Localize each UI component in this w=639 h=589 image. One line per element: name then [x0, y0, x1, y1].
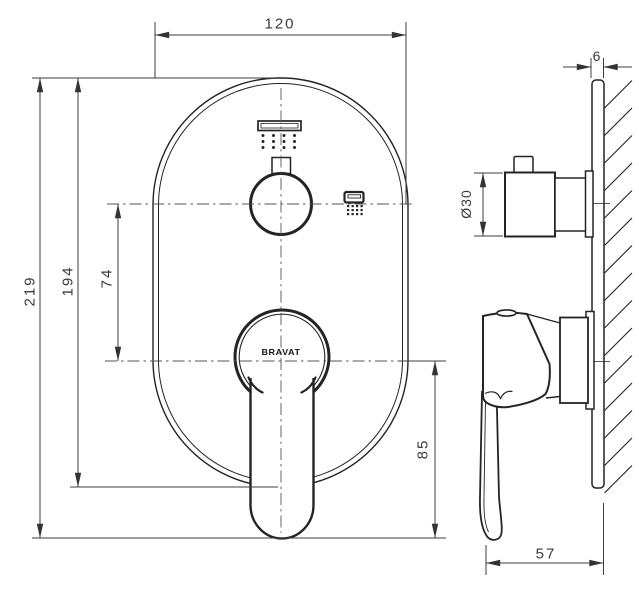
- side-view: [480, 80, 632, 540]
- dim-plate-thickness: 6: [593, 48, 602, 64]
- wall-hatching: [605, 81, 633, 494]
- dim-total-height: 219: [22, 275, 39, 306]
- brand-logo: BRAVAT: [261, 347, 300, 357]
- front-view: [105, 78, 412, 538]
- dim-knob-diameter: Ø30: [458, 189, 474, 218]
- rain-shower-icon: [258, 121, 301, 149]
- handle-side-base: [560, 318, 588, 404]
- knob-side-button: [514, 157, 533, 174]
- dim-total-height-lines: [32, 78, 446, 538]
- dim-handle-projection-lines: [486, 503, 604, 575]
- handle-front: [235, 310, 329, 538]
- technical-drawing: [0, 0, 639, 589]
- knob-side-neck: [555, 178, 586, 231]
- handle-side-cap: [497, 310, 516, 316]
- dim-plate-height: 194: [60, 265, 77, 296]
- drawing-canvas: 120 219 194 74 6 Ø30 85 57 BRAVAT: [0, 0, 639, 589]
- handle-side: [480, 310, 594, 540]
- knob-side: [505, 157, 593, 238]
- handle-lever: [251, 378, 314, 538]
- dim-knob-diameter-lines: [474, 173, 503, 236]
- dimension-lines: [32, 22, 632, 575]
- knob-side-body: [505, 173, 555, 237]
- handle-side-lever: [480, 392, 502, 540]
- knob-side-flange: [586, 171, 594, 237]
- dim-handle-drop: 85: [415, 439, 432, 460]
- handle-side-body: [483, 313, 550, 407]
- dim-plate-width: 120: [264, 16, 295, 33]
- dim-knob-to-handle: 74: [99, 268, 116, 289]
- plate-side: [592, 80, 604, 488]
- dim-handle-projection: 57: [536, 546, 557, 563]
